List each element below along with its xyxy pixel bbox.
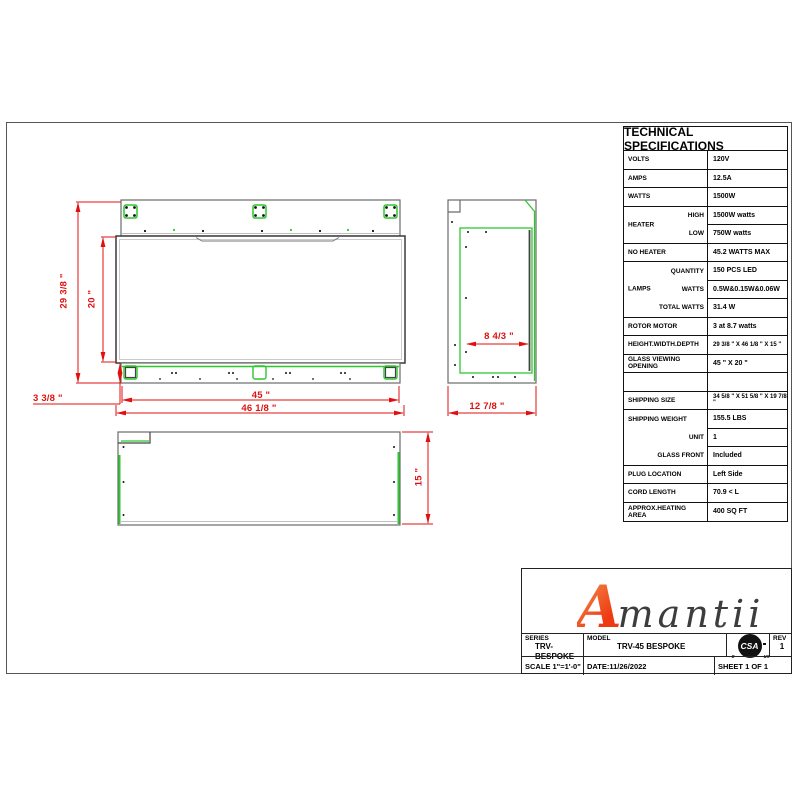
spec-label: HEIGHT.WIDTH.DEPTH bbox=[624, 336, 708, 354]
csa-cell: CSA c us bbox=[727, 634, 770, 656]
csa-mark-text: CSA bbox=[741, 641, 759, 651]
spec-sub-value: 155.5 LBS bbox=[708, 410, 787, 428]
spec-table-title: TECHNICAL SPECIFICATIONS bbox=[624, 127, 787, 151]
spec-sub-value: 150 PCS LED bbox=[708, 262, 787, 280]
spec-label: SHIPPING SIZE bbox=[624, 392, 708, 410]
spec-sub-label: GLASS FRONT bbox=[624, 446, 707, 464]
spec-row-empty bbox=[624, 373, 787, 392]
rev-value: 1 bbox=[773, 642, 791, 651]
spec-row-shipping-size: SHIPPING SIZE 34 5/8 " X 51 5/8 " X 19 7… bbox=[624, 392, 787, 411]
dim-label-plan-depth: 15 " bbox=[414, 468, 425, 487]
date-cell: DATE:11/26/2022 bbox=[584, 657, 715, 675]
spec-label: GLASS VIEWING OPENING bbox=[624, 355, 708, 373]
model-label: MODEL bbox=[587, 635, 726, 642]
rev-cell: REV 1 bbox=[770, 634, 791, 656]
spec-value bbox=[708, 373, 787, 391]
spec-row-shipping-group: SHIPPING WEIGHT UNIT GLASS FRONT 155.5 L… bbox=[624, 410, 787, 466]
spec-label: AMPS bbox=[624, 170, 708, 188]
dim-label-viewing-height: 20 " bbox=[87, 290, 98, 309]
spec-value: 70.9 < L bbox=[708, 484, 787, 502]
spec-row-plug-location: PLUG LOCATION Left Side bbox=[624, 466, 787, 485]
spec-label: NO HEATER bbox=[624, 244, 708, 262]
spec-row-rotor-motor: ROTOR MOTOR 3 at 8.7 watts bbox=[624, 318, 787, 337]
spec-value: 45.2 WATTS MAX bbox=[708, 244, 787, 262]
model-value: TRV-45 BESPOKE bbox=[587, 642, 726, 652]
spec-value: 45 " X 20 " bbox=[708, 355, 787, 373]
spec-value: 29 3/8 " X 46 1/8 " X 15 " bbox=[708, 336, 787, 354]
spec-sub-value: 1500W watts bbox=[708, 207, 787, 225]
spec-value: 34 5/8 " X 51 5/8 " X 19 7/8 " bbox=[708, 392, 787, 410]
spec-row-heater: HEATER HIGH LOW 1500W watts 750W watts bbox=[624, 207, 787, 244]
spec-group-name: HEATER bbox=[628, 221, 654, 228]
csa-registered-dot bbox=[763, 643, 766, 646]
spec-sub-value: Included bbox=[708, 446, 787, 465]
series-label: SERIES bbox=[525, 635, 583, 642]
spec-row-dimensions: HEIGHT.WIDTH.DEPTH 29 3/8 " X 46 1/8 " X… bbox=[624, 336, 787, 355]
spec-row-volts: VOLTS 120V bbox=[624, 151, 787, 170]
spec-label: APPROX.HEATING AREA bbox=[624, 503, 708, 522]
logo-wordmark: mantii bbox=[618, 595, 765, 633]
spec-value: 3 at 8.7 watts bbox=[708, 318, 787, 336]
spec-sub-value: 1 bbox=[708, 428, 787, 447]
dim-label-viewing-width: 45 " bbox=[252, 390, 271, 401]
spec-value-group: 1500W watts 750W watts bbox=[708, 207, 787, 243]
dim-label-base-height: 3 3/8 " bbox=[33, 393, 63, 404]
logo-letter-a: A bbox=[577, 581, 622, 633]
spec-value-group: 155.5 LBS 1 Included bbox=[708, 410, 787, 465]
model-cell: MODEL TRV-45 BESPOKE bbox=[584, 634, 727, 656]
spec-sub-value: 31.4 W bbox=[708, 298, 787, 317]
spec-sub-label: UNIT bbox=[624, 428, 707, 446]
spec-row-heating-area: APPROX.HEATING AREA 400 SQ FT bbox=[624, 503, 787, 522]
scale-cell: SCALE 1"=1'-0" bbox=[522, 657, 584, 675]
amantii-logo: A mantii bbox=[522, 569, 791, 633]
dim-label-glass-inset-depth: 8 4/3 " bbox=[484, 331, 514, 342]
spec-row-watts: WATTS 1500W bbox=[624, 188, 787, 207]
spec-row-glass-viewing: GLASS VIEWING OPENING 45 " X 20 " bbox=[624, 355, 787, 374]
spec-sub-label: TOTAL WATTS bbox=[624, 298, 707, 316]
spec-label-group: LAMPS QUANTITY WATTS TOTAL WATTS bbox=[624, 262, 708, 317]
spec-row-no-heater: NO HEATER 45.2 WATTS MAX bbox=[624, 244, 787, 263]
spec-value: 12.5A bbox=[708, 170, 787, 188]
dim-label-overall-height: 29 3/8 " bbox=[59, 273, 70, 308]
spec-sub-label: QUANTITY bbox=[624, 262, 707, 280]
spec-sub-value: 750W watts bbox=[708, 224, 787, 243]
title-block-info-row: SERIES TRV-BESPOKE MODEL TRV-45 BESPOKE … bbox=[522, 633, 791, 656]
dim-label-overall-width: 46 1/8 " bbox=[241, 403, 276, 414]
spec-row-cord-length: CORD LENGTH 70.9 < L bbox=[624, 484, 787, 503]
spec-value: 120V bbox=[708, 151, 787, 169]
drawing-sheet: 29 3/8 " 20 " 3 3/8 " 45 " 46 1/8 " 8 4/… bbox=[0, 0, 800, 800]
spec-label: WATTS bbox=[624, 188, 708, 206]
title-block-bottom-row: SCALE 1"=1'-0" DATE:11/26/2022 SHEET 1 O… bbox=[522, 656, 791, 675]
spec-label-group: SHIPPING WEIGHT UNIT GLASS FRONT bbox=[624, 410, 708, 465]
spec-row-lamps: LAMPS QUANTITY WATTS TOTAL WATTS 150 PCS… bbox=[624, 262, 787, 318]
sheet-cell: SHEET 1 OF 1 bbox=[715, 657, 791, 675]
spec-value-group: 150 PCS LED 0.5W&0.15W&0.06W 31.4 W bbox=[708, 262, 787, 317]
spec-label: VOLTS bbox=[624, 151, 708, 169]
spec-sub-label: SHIPPING WEIGHT bbox=[624, 410, 707, 428]
spec-label bbox=[624, 373, 708, 391]
spec-value: 400 SQ FT bbox=[708, 503, 787, 522]
spec-row-amps: AMPS 12.5A bbox=[624, 170, 787, 189]
dim-label-overall-depth: 12 7/8 " bbox=[469, 401, 504, 412]
technical-specifications-table: TECHNICAL SPECIFICATIONS VOLTS 120V AMPS… bbox=[623, 126, 788, 522]
spec-value: Left Side bbox=[708, 466, 787, 484]
spec-sub-value: 0.5W&0.15W&0.06W bbox=[708, 280, 787, 299]
spec-label: CORD LENGTH bbox=[624, 484, 708, 502]
spec-label: PLUG LOCATION bbox=[624, 466, 708, 484]
spec-value: 1500W bbox=[708, 188, 787, 206]
spec-group-name: LAMPS bbox=[628, 286, 651, 293]
csa-certification-icon: CSA c us bbox=[738, 634, 762, 658]
title-block: A mantii SERIES TRV-BESPOKE MODEL TRV-45… bbox=[521, 568, 792, 674]
spec-label: ROTOR MOTOR bbox=[624, 318, 708, 336]
series-cell: SERIES TRV-BESPOKE bbox=[522, 634, 584, 656]
spec-label-group: HEATER HIGH LOW bbox=[624, 207, 708, 243]
rev-label: REV bbox=[773, 635, 791, 642]
